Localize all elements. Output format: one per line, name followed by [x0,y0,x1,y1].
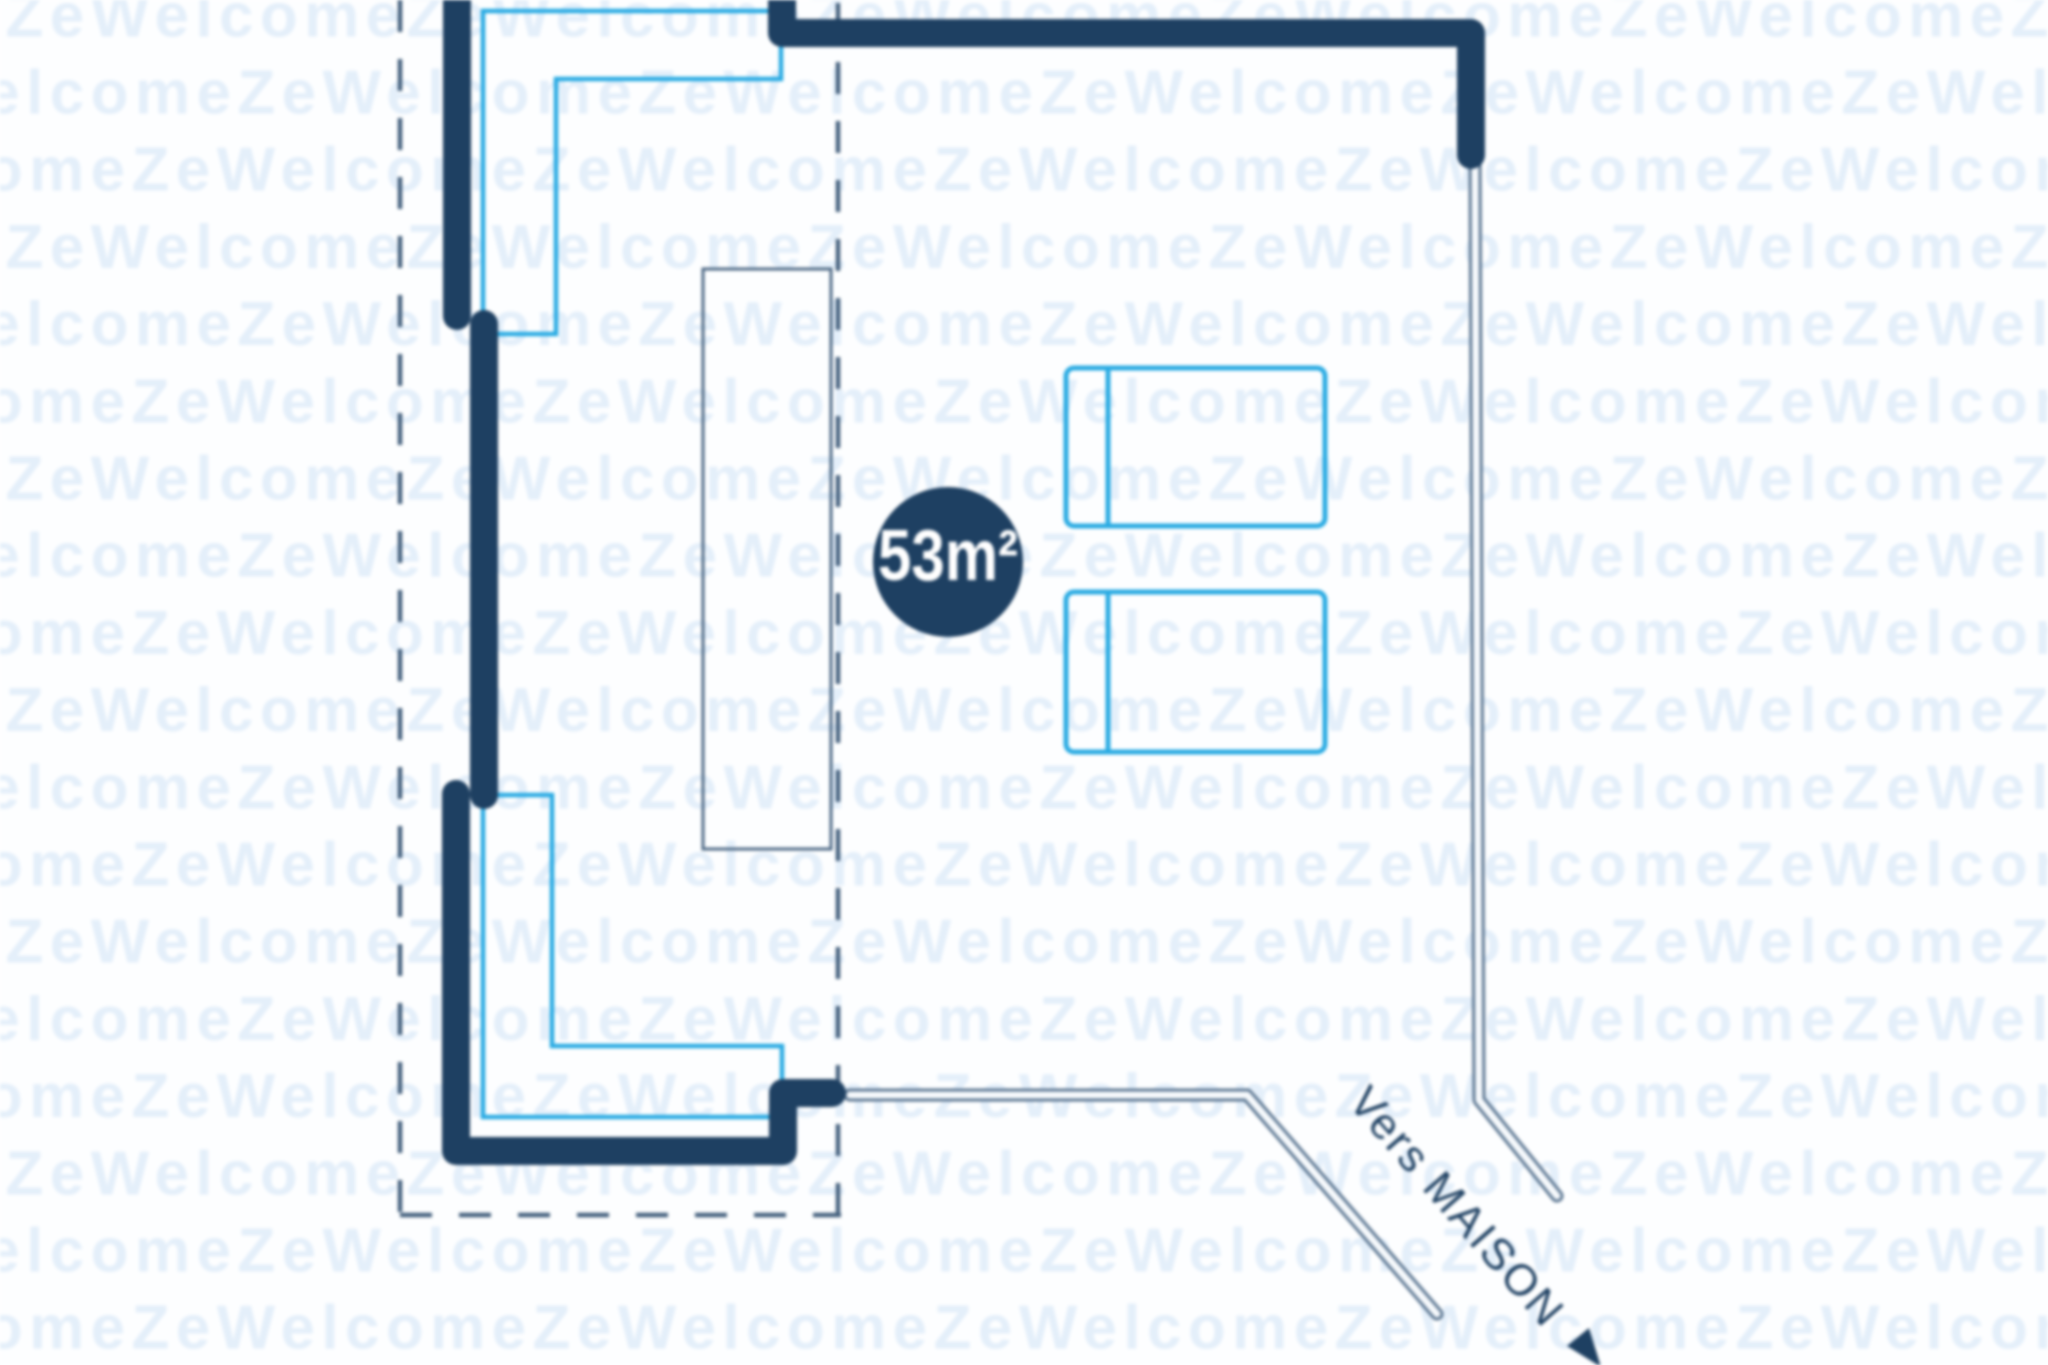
svg-text:53m²: 53m² [878,516,1018,596]
svg-text:ZeWelcomeZeWelcomeZeWelcomeZeW: ZeWelcomeZeWelcomeZeWelcomeZeWelcomeZeWe… [0,599,2048,668]
svg-text:ZeWelcomeZeWelcomeZeWelcomeZeW: ZeWelcomeZeWelcomeZeWelcomeZeWelcomeZeWe… [0,908,2048,977]
svg-text:ZeWelcomeZeWelcomeZeWelcomeZeW: ZeWelcomeZeWelcomeZeWelcomeZeWelcomeZeWe… [0,213,2048,282]
svg-text:ZeWelcomeZeWelcomeZeWelcomeZeW: ZeWelcomeZeWelcomeZeWelcomeZeWelcomeZeWe… [0,290,2048,359]
svg-text:ZeWelcomeZeWelcomeZeWelcomeZeW: ZeWelcomeZeWelcomeZeWelcomeZeWelcomeZeWe… [0,1217,2048,1286]
svg-text:ZeWelcomeZeWelcomeZeWelcomeZeW: ZeWelcomeZeWelcomeZeWelcomeZeWelcomeZeWe… [0,753,2048,822]
svg-text:ZeWelcomeZeWelcomeZeWelcomeZeW: ZeWelcomeZeWelcomeZeWelcomeZeWelcomeZeWe… [0,831,2048,900]
svg-text:ZeWelcomeZeWelcomeZeWelcomeZeW: ZeWelcomeZeWelcomeZeWelcomeZeWelcomeZeWe… [0,59,2048,128]
svg-text:ZeWelcomeZeWelcomeZeWelcomeZeW: ZeWelcomeZeWelcomeZeWelcomeZeWelcomeZeWe… [0,1294,2048,1363]
svg-text:ZeWelcomeZeWelcomeZeWelcomeZeW: ZeWelcomeZeWelcomeZeWelcomeZeWelcomeZeWe… [0,1139,2048,1208]
svg-text:ZeWelcomeZeWelcomeZeWelcomeZeW: ZeWelcomeZeWelcomeZeWelcomeZeWelcomeZeWe… [0,676,2048,745]
svg-text:ZeWelcomeZeWelcomeZeWelcomeZeW: ZeWelcomeZeWelcomeZeWelcomeZeWelcomeZeWe… [0,985,2048,1054]
svg-text:ZeWelcomeZeWelcomeZeWelcomeZeW: ZeWelcomeZeWelcomeZeWelcomeZeWelcomeZeWe… [0,522,2048,591]
svg-text:ZeWelcomeZeWelcomeZeWelcomeZeW: ZeWelcomeZeWelcomeZeWelcomeZeWelcomeZeWe… [0,136,2048,205]
svg-text:ZeWelcomeZeWelcomeZeWelcomeZeW: ZeWelcomeZeWelcomeZeWelcomeZeWelcomeZeWe… [0,367,2048,436]
svg-text:ZeWelcomeZeWelcomeZeWelcomeZeW: ZeWelcomeZeWelcomeZeWelcomeZeWelcomeZeWe… [0,445,2048,514]
